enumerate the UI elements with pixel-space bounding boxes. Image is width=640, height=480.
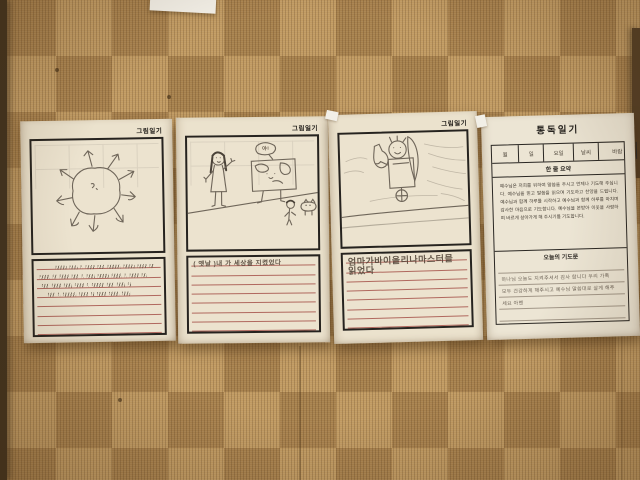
picture-diary-page-3: 그림일기 [328,111,483,344]
red-rule-line [348,315,469,319]
drawing-area [29,137,165,255]
handwriting-word [63,293,76,297]
red-rule-line [191,274,315,276]
handwriting-word [48,293,55,297]
handwriting-word [109,292,119,296]
red-rule-line [348,324,469,328]
red-rule-line [192,292,316,294]
diary-frame: 엄마가바이올리나마스터믈읽었다 [337,129,473,331]
handwriting-word [98,264,105,268]
handwriting-word [79,292,88,296]
carpet-seam [299,346,301,480]
handwriting-word [56,265,67,269]
handwriting-word [91,292,94,296]
red-rule-line [38,323,162,326]
handwriting-word [122,292,130,296]
handwriting-word [108,264,121,268]
page-title: 그림일기 [136,125,162,135]
reading-diary-page: 통독일기 월일요일날씨바람수 한 줄 요약 예수님은 저희를 위하여 말씀을 주… [481,113,640,340]
stray-paper-corner [150,0,217,14]
handwriting-word [82,274,84,278]
handwritten-sentence: 읽었다 [348,260,467,277]
handwriting-word [150,264,154,268]
handwriting-word [75,283,84,287]
handwriting-word [70,265,78,269]
red-rule-line [347,287,468,291]
sun-drawing [31,139,163,246]
page-title: 그림일기 [292,122,318,132]
handwriting-word [58,293,60,297]
handwriting-word [60,274,69,278]
handwriting-word [107,283,114,287]
handwriting-word [40,275,50,279]
carpet-left-dark-edge [0,0,7,480]
red-rule-line [347,297,468,301]
handwriting-word [81,265,83,269]
handwriting-word [64,283,72,287]
red-rule-line [37,313,161,316]
red-rule-line [192,302,316,304]
handwriting-word [138,264,147,268]
red-rule-line [192,329,316,331]
printed-summary-text: 예수님은 저희를 위하여 말씀을 주시고 언제나 기도해 주십니다. 예수님을 … [500,179,619,222]
handwriting-word [112,273,122,277]
date-cell: 수 [637,141,640,159]
picture-diary-page-2: 그림일기 [176,116,330,344]
writing-area: ( 옛날 )내 가 세상을 지켰었다 [186,254,321,333]
tape-bit [325,110,339,121]
handwriting-word [87,274,95,278]
photo-of-diary-pages-on-carpet: 그림일기 그림 [0,0,640,480]
handwriting-word [117,283,125,287]
date-cell: 날씨 [574,143,599,161]
date-cell: 요일 [544,144,574,162]
handwriting-word [125,273,127,277]
handwriting-word [142,273,147,277]
drawing-area: 야! [185,134,320,251]
picture-diary-page-1: 그림일기 [20,119,176,344]
red-rule-line [192,283,316,285]
carpet-speck [55,68,59,72]
handwriting-word [72,274,79,278]
tape-bit [475,114,487,128]
handwriting-word [97,292,106,296]
red-rule-line [192,311,316,313]
date-cell: 일 [519,144,544,162]
handwriting-word [128,282,131,286]
diary-frame [29,137,166,337]
form-frame: 월일요일날씨바람수 한 줄 요약 예수님은 저희를 위하여 말씀을 주시고 언제… [491,141,630,325]
handwriting-word [87,283,89,287]
handwriting-word [130,273,139,277]
drawing-area [337,129,471,249]
girl-and-map-drawing [187,136,318,244]
red-rule-line [192,320,316,322]
handwriting-word [98,274,109,278]
handwritten-sentence: ( 옛날 )내 가 세상을 지켰었다 [193,256,315,268]
red-rule-line [347,306,468,310]
red-rule-line [38,332,162,335]
date-cell: 월 [492,145,520,163]
carpet-speck [167,95,171,99]
red-rule-line [346,278,467,282]
page-title: 통독일기 [481,120,634,138]
handwriting-word [53,274,57,278]
handwriting-word [42,284,49,288]
red-rule-line [37,304,161,307]
writing-area: 엄마가바이올리나마스터믈읽었다 [341,249,474,331]
handwriting-word [124,264,135,268]
page-title: 그림일기 [441,117,467,128]
date-cell: 바람 [599,142,637,160]
figure-with-bottle-drawing [339,131,469,240]
handwriting-word [52,284,61,288]
gray-rule-line [500,317,626,322]
summary-paragraph-area: 예수님은 저희를 위하여 말씀을 주시고 언제나 기도해 주십니다. 예수님을 … [493,174,627,252]
handwriting-word [92,283,104,287]
speech-bubble-text: 야! [262,144,314,152]
prayer-writing-area: 하나님 오늘도 지켜주셔서 감사 합니다 우리 가족모두 건강하게 해주시고 예… [495,261,629,327]
writing-area [31,257,166,337]
carpet-speck [118,398,122,402]
diary-frame: 야! ( 옛날 )내 가 세상을 지켰었다 [185,134,321,333]
handwriting-word [86,265,95,269]
